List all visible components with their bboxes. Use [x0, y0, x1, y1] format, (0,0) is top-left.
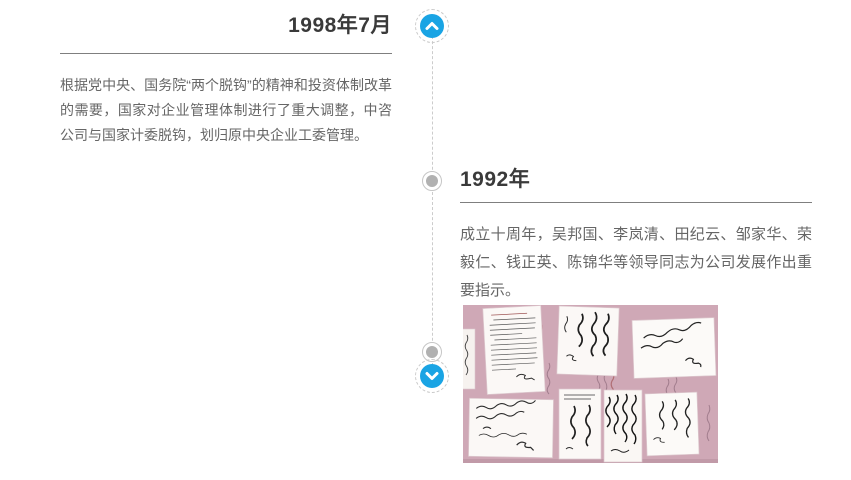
chevron-down-icon [420, 364, 444, 388]
entry-body-1998: 根据党中央、国务院“两个脱钩”的精神和投资体制改革的需要，国家对企业管理体制进行… [60, 73, 392, 148]
entry-title-1992: 1992年 [460, 166, 812, 194]
timeline-page: 1998年7月 根据党中央、国务院“两个脱钩”的精神和投资体制改革的需要，国家对… [0, 0, 851, 480]
timeline-up-button[interactable] [415, 9, 449, 43]
timeline-entry-1992: 1992年 成立十周年，吴邦国、李岚清、田纪云、邹家华、荣毅仁、钱正英、陈锦华等… [460, 166, 812, 305]
inscriptions-photo [463, 305, 718, 463]
entry-title-1998: 1998年7月 [60, 12, 392, 40]
inscriptions-collage-graphic [463, 305, 718, 463]
title-rule [60, 53, 392, 54]
timeline-entry-1998: 1998年7月 根据党中央、国务院“两个脱钩”的精神和投资体制改革的需要，国家对… [60, 12, 392, 148]
timeline-dot-1992 [422, 171, 442, 191]
timeline-line [432, 26, 433, 376]
timeline-down-button[interactable] [415, 359, 449, 393]
title-rule [460, 202, 812, 203]
chevron-up-icon [420, 14, 444, 38]
entry-body-1992: 成立十周年，吴邦国、李岚清、田纪云、邹家华、荣毅仁、钱正英、陈锦华等领导同志为公… [460, 221, 812, 305]
